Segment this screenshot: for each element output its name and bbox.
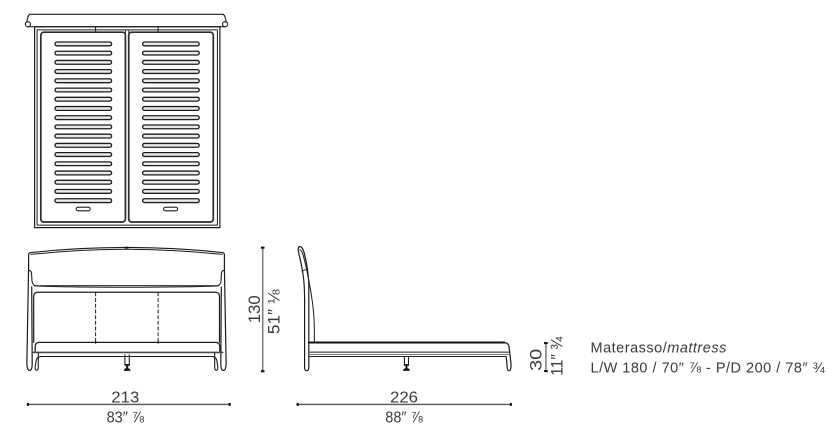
svg-text:213: 213 (111, 389, 139, 406)
svg-text:30: 30 (528, 349, 546, 371)
svg-text:51″ ⅛: 51″ ⅛ (265, 289, 283, 334)
svg-text:L/W 180 / 70″ ⅞ - P/D 200 / 78: L/W 180 / 70″ ⅞ - P/D 200 / 78″ ¾ (591, 360, 826, 376)
svg-text:88″ ⅞: 88″ ⅞ (385, 409, 422, 426)
svg-text:130: 130 (246, 295, 264, 323)
svg-text:226: 226 (390, 389, 418, 406)
svg-text:Materasso/mattress: Materasso/mattress (591, 341, 727, 357)
svg-text:83″ ⅞: 83″ ⅞ (107, 409, 144, 426)
svg-text:11″ ¾: 11″ ¾ (548, 337, 566, 376)
